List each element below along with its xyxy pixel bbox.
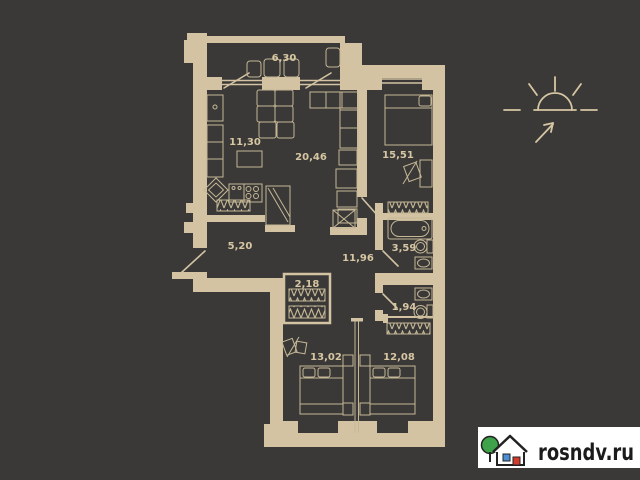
wardrobe-hatch	[217, 200, 250, 211]
watermark-site-text: rosndv.ru	[538, 440, 634, 466]
room-area-label-balcony: 6,30	[272, 53, 297, 64]
room-area-label-hallway: 5,20	[228, 241, 253, 252]
plan-background	[0, 0, 640, 480]
logo-house-door	[513, 457, 520, 465]
wardrobe-hatch	[387, 323, 430, 334]
wall-segment	[375, 203, 383, 250]
wardrobe-hatch	[289, 306, 325, 318]
room-area-label-bedroom3: 12,08	[383, 352, 415, 363]
balcony-outer-wall	[200, 36, 345, 43]
wall-segment	[270, 421, 298, 433]
wall-segment	[338, 421, 377, 433]
room-area-label-corridor: 11,96	[342, 253, 374, 264]
wall-segment	[340, 43, 362, 90]
partition-cap	[351, 318, 363, 322]
wall-segment	[375, 310, 383, 321]
wall-segment	[193, 77, 222, 90]
wall-segment	[433, 65, 445, 447]
wall-segment	[383, 314, 388, 323]
wall-segment	[383, 213, 433, 220]
wall-segment	[375, 285, 383, 293]
room-area-label-bedroom1: 15,51	[382, 150, 414, 161]
room-area-label-bedroom2: 13,02	[310, 352, 342, 363]
room-area-label-closet: 2,18	[295, 279, 320, 290]
floor-plan: 6,30 11,30 20,46 15,51 5,20 11,96 3,59 2…	[0, 0, 640, 480]
wall-segment	[207, 215, 265, 222]
room-area-label-bathroom: 3,59	[392, 243, 417, 254]
wall-segment	[422, 78, 445, 90]
watermark-logo: rosndv.ru	[478, 427, 640, 468]
balcony-side-wall	[200, 43, 205, 77]
wall-segment	[360, 78, 382, 90]
floorplan-screenshot: 6,30 11,30 20,46 15,51 5,20 11,96 3,59 2…	[0, 0, 640, 480]
wall-segment	[270, 433, 445, 447]
logo-house-window	[503, 454, 510, 461]
wardrobe-hatch	[388, 202, 428, 213]
wall-segment	[262, 77, 300, 90]
wall-segment	[360, 65, 445, 78]
room-area-label-kitchen: 11,30	[229, 137, 261, 148]
room-area-label-living: 20,46	[295, 152, 327, 163]
wall-segment	[193, 278, 283, 292]
wall-segment	[172, 272, 193, 279]
wall-segment	[186, 203, 193, 213]
wall-segment	[264, 424, 270, 447]
wall-segment	[265, 225, 295, 232]
wall-segment	[184, 40, 193, 63]
room-area-label-wc: 1,94	[392, 302, 417, 313]
wardrobe-hatch	[289, 289, 325, 301]
wall-segment	[375, 273, 433, 285]
wall-segment	[184, 222, 193, 233]
